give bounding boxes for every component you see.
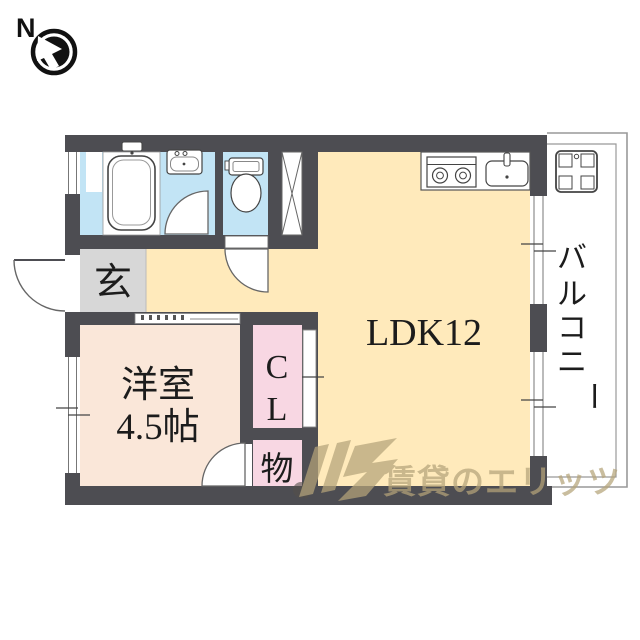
entrance-label: 玄 [94, 262, 132, 304]
balcony-char-1: バ [557, 242, 587, 275]
wall-closet-storage [240, 428, 318, 440]
compass-north-label: N [16, 13, 36, 43]
closet-label-c: C [266, 349, 289, 386]
window-symbol [65, 152, 80, 194]
balcony-char-3: コ [557, 312, 587, 345]
balcony-char-2: ル [557, 278, 587, 311]
wall-shaft-ldk [302, 152, 318, 249]
compass-icon: N [16, 13, 75, 73]
closet-label-l: L [267, 391, 288, 428]
balcony-char-4: ニ [557, 346, 587, 379]
floor-plan: N バ ル コ ニ ー [0, 0, 640, 640]
stove-icon [427, 157, 476, 187]
bathtub-icon [103, 142, 160, 235]
washer-pan-icon [556, 151, 597, 192]
entrance-door-arc [14, 255, 80, 312]
balcony: バ ル コ ニ ー [547, 133, 627, 487]
western-room-label-1: 洋室 [121, 364, 195, 406]
watermark-text: 賃貸のエリッツ [382, 463, 621, 500]
kitchen-counter [421, 152, 530, 190]
balcony-char-5: ー [576, 381, 609, 411]
wall-toilet-shaft [268, 152, 282, 249]
bath-niche [86, 152, 102, 192]
floor-plan-page: N バ ル コ ニ ー [0, 0, 640, 640]
washbasin-icon [167, 150, 202, 174]
pipe-shaft-icon [282, 152, 302, 235]
ldk-label: LDK12 [366, 312, 482, 354]
sliding-door-symbol [135, 314, 240, 324]
wall-bath-toilet [215, 152, 223, 249]
western-room-label-2: 4.5帖 [116, 407, 199, 448]
storage-label: 物 [261, 451, 294, 488]
